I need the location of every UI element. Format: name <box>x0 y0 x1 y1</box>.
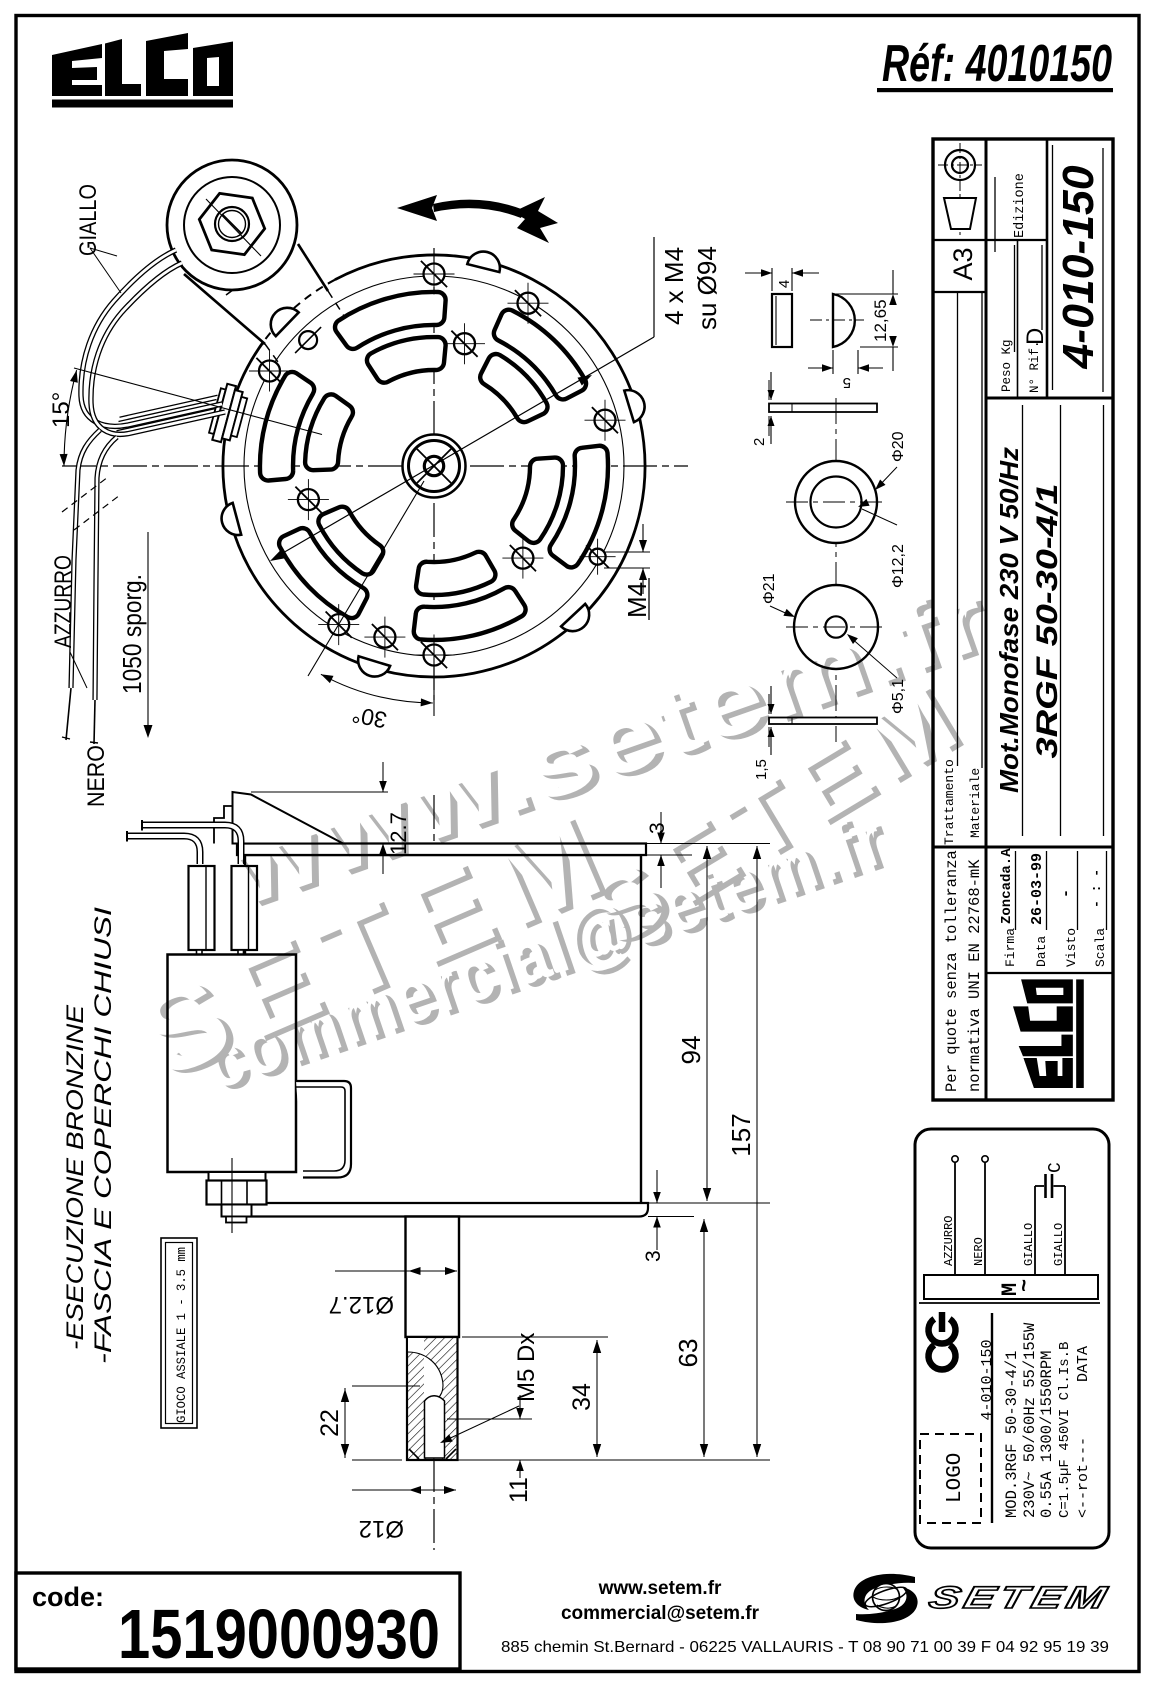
svg-text:Réf: 4010150: Réf: 4010150 <box>882 35 1112 93</box>
svg-text:Per quote senza tolleranza: Per quote senza tolleranza <box>943 850 961 1092</box>
svg-text:GIOCO ASSIALE 1 - 3.5 mm: GIOCO ASSIALE 1 - 3.5 mm <box>174 1247 189 1423</box>
svg-text:12,65: 12,65 <box>871 299 890 342</box>
svg-text:2: 2 <box>751 438 768 446</box>
svg-text:885 chemin St.Bernard - 0622: 885 chemin St.Bernard - 06225 VALLAURIS … <box>501 1639 1109 1656</box>
svg-text:www.setem.fr: www.setem.fr <box>598 1578 722 1599</box>
svg-text:Ø12.7: Ø12.7 <box>329 1291 394 1318</box>
svg-text:C=1.5µF 450VI Cl.Is.B: C=1.5µF 450VI Cl.Is.B <box>1057 1342 1073 1518</box>
svg-text:GIALLO: GIALLO <box>1022 1223 1036 1266</box>
svg-text:M5 Dx: M5 Dx <box>513 1333 540 1402</box>
svg-text:3: 3 <box>642 1250 665 1262</box>
svg-text:SETEM: SETEM <box>925 1580 1114 1614</box>
svg-text:3: 3 <box>646 822 669 834</box>
svg-text:-ESECUZIONE BRONZINE: -ESECUZIONE BRONZINE <box>62 1004 89 1350</box>
svg-text:94: 94 <box>676 1036 706 1065</box>
svg-text:Peso Kg: Peso Kg <box>1000 339 1014 392</box>
svg-text:1050 sporg.: 1050 sporg. <box>117 574 147 694</box>
svg-text:-: - <box>1058 889 1075 898</box>
svg-text:MOD.3RGF 50-30-4/1: MOD.3RGF 50-30-4/1 <box>1003 1351 1021 1518</box>
svg-text:4: 4 <box>776 280 793 288</box>
svg-text:normativa UNI EN 22768-mK: normativa UNI EN 22768-mK <box>966 859 984 1092</box>
svg-text:63: 63 <box>673 1339 703 1368</box>
svg-text:N° Rif.: N° Rif. <box>1028 340 1042 393</box>
svg-text:AZZURRO: AZZURRO <box>942 1216 956 1266</box>
svg-text:GIALLO: GIALLO <box>75 184 102 256</box>
svg-text:1,5: 1,5 <box>753 759 770 780</box>
svg-text:<--rot---: <--rot--- <box>1075 1437 1092 1518</box>
svg-text:DATA: DATA <box>1075 1346 1092 1382</box>
svg-text:1519000930: 1519000930 <box>118 1595 440 1673</box>
svg-text:NERO: NERO <box>972 1237 986 1266</box>
svg-text:4-010-150: 4-010-150 <box>979 1339 996 1420</box>
svg-text:15°: 15° <box>48 392 75 428</box>
svg-text:Φ12,2: Φ12,2 <box>890 544 907 588</box>
svg-text:Mot.Monofase 230 V 50/Hz: Mot.Monofase 230 V 50/Hz <box>994 447 1024 793</box>
svg-text:AZZURRO: AZZURRO <box>50 555 77 648</box>
svg-text:Φ21: Φ21 <box>761 573 778 604</box>
svg-text:Visto: Visto <box>1064 928 1079 967</box>
svg-text:M4: M4 <box>622 582 652 618</box>
svg-text:4-010-150: 4-010-150 <box>1054 165 1103 370</box>
svg-text:26-03-99: 26-03-99 <box>1029 853 1046 925</box>
svg-text:34: 34 <box>568 1383 596 1411</box>
svg-text:su Ø94: su Ø94 <box>692 246 722 330</box>
svg-text:157: 157 <box>726 1113 756 1156</box>
svg-text:Materiale: Materiale <box>968 768 983 838</box>
svg-text:A3: A3 <box>948 247 978 280</box>
svg-text:~: ~ <box>1013 1279 1038 1292</box>
svg-text:Ø12: Ø12 <box>359 1515 404 1542</box>
svg-text:4 x M4: 4 x M4 <box>659 247 689 325</box>
svg-text:Zoncada.A: Zoncada.A <box>999 848 1015 924</box>
svg-text:C: C <box>1046 1162 1066 1173</box>
svg-text:GIALLO: GIALLO <box>1052 1223 1066 1266</box>
svg-text:22: 22 <box>316 1409 344 1437</box>
svg-text:11: 11 <box>505 1477 533 1503</box>
svg-text:Scala: Scala <box>1093 928 1108 967</box>
svg-text:- : -: - : - <box>1089 869 1104 908</box>
svg-text:Φ20: Φ20 <box>890 431 907 462</box>
svg-text:Firma: Firma <box>1003 928 1018 967</box>
svg-text:LOGO: LOGO <box>944 1453 967 1503</box>
svg-text:code:: code: <box>32 1582 104 1612</box>
svg-text:Edizione: Edizione <box>1013 173 1028 238</box>
svg-text:230V~ 50/60Hz 55/155W: 230V~ 50/60Hz 55/155W <box>1021 1322 1039 1518</box>
svg-text:5: 5 <box>843 374 851 391</box>
svg-text:NERO: NERO <box>83 745 110 807</box>
svg-text:0.55A 1300/1550RPM: 0.55A 1300/1550RPM <box>1038 1351 1056 1518</box>
svg-text:commercial@setem.fr: commercial@setem.fr <box>561 1603 760 1624</box>
svg-text:Data: Data <box>1034 936 1049 967</box>
svg-text:-FASCIA E COPERCHI CHIUSI: -FASCIA E COPERCHI CHIUSI <box>90 907 117 1364</box>
svg-text:3RGF 50-30-4/1: 3RGF 50-30-4/1 <box>1031 484 1064 759</box>
svg-text:D: D <box>1022 328 1049 345</box>
